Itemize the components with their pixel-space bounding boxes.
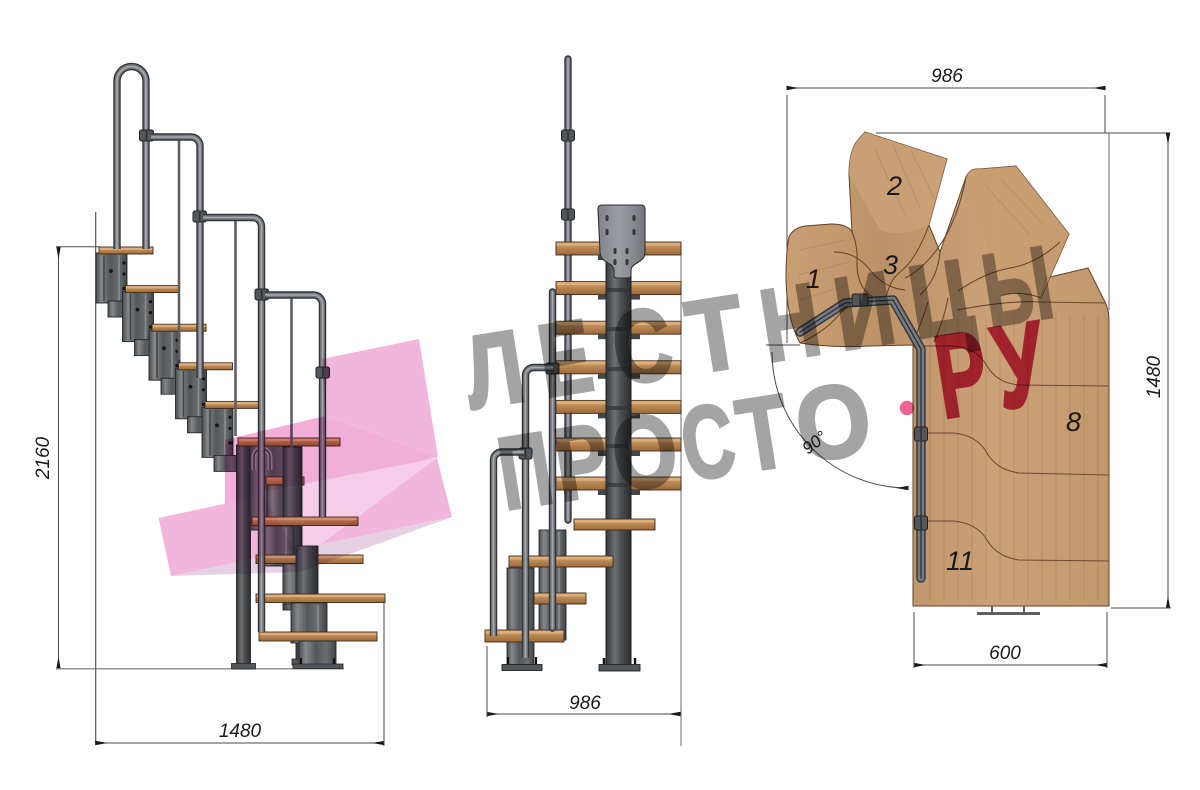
svg-text:1480: 1480 bbox=[219, 721, 262, 742]
svg-text:8: 8 bbox=[1066, 407, 1081, 437]
svg-text:986: 986 bbox=[931, 66, 963, 87]
svg-text:1480: 1480 bbox=[1144, 355, 1165, 398]
svg-text:986: 986 bbox=[569, 693, 601, 714]
svg-text:2: 2 bbox=[886, 171, 902, 201]
svg-text:Л: Л bbox=[456, 308, 531, 431]
svg-text:600: 600 bbox=[989, 643, 1021, 664]
svg-text:Е: Е bbox=[531, 297, 600, 419]
svg-text:Т: Т bbox=[729, 372, 796, 493]
svg-text:2160: 2160 bbox=[33, 436, 54, 480]
svg-text:Т: Т bbox=[679, 273, 752, 395]
svg-text:О: О bbox=[788, 359, 879, 484]
svg-text:11: 11 bbox=[946, 546, 974, 576]
